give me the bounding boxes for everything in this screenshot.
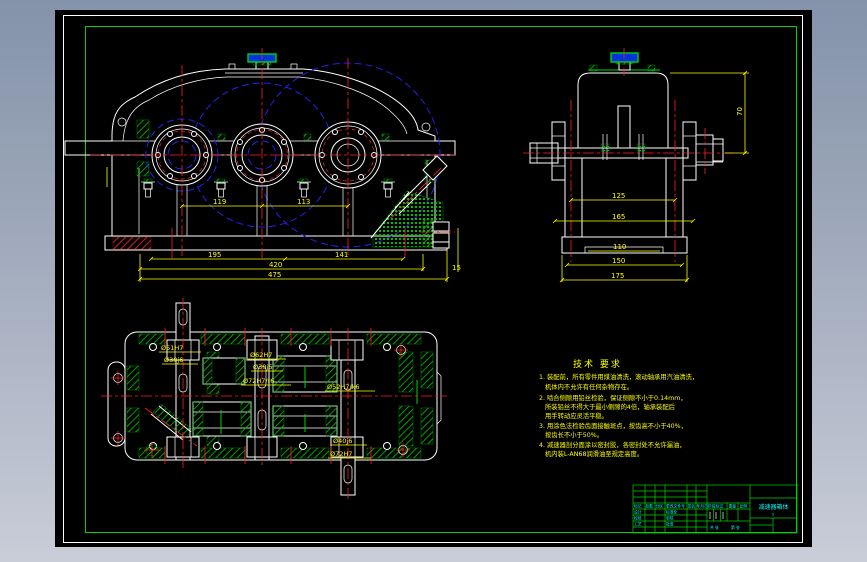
tech-notes-title: 技术 要求 <box>573 358 622 370</box>
fit-bore2-line2: Ø30j6 <box>253 363 272 371</box>
tb-role-check: 校核 <box>634 516 642 521</box>
tb-rev-count: 处数 <box>646 504 654 509</box>
dim-w5: 175 <box>611 272 624 280</box>
tb-sheet-total: 共 张 <box>710 525 719 530</box>
breather-plug-side <box>611 53 638 70</box>
dim-total-1: 420 <box>269 261 282 269</box>
dim-center-distance-2: 113 <box>297 198 310 206</box>
dim-center-distance-1: 119 <box>213 198 226 206</box>
tb-sheet-no: 第 张 <box>731 525 740 530</box>
fit-bore5-line2: Ø72H7 <box>330 450 352 458</box>
fit-bore1-line2: Ø30j6 <box>164 356 183 364</box>
dim-w1: 125 <box>612 192 625 200</box>
dim-w4: 150 <box>612 257 625 265</box>
breather-plug <box>225 54 303 73</box>
tb-role-audit: 审核 <box>666 516 674 521</box>
tech-note-line: 3. 用涂色法检验齿面接触斑点，按齿高不小于40%， <box>539 421 687 430</box>
fit-bore1-line1: Ø51H7 <box>161 344 183 352</box>
tb-rev-zone: 分区 <box>656 504 664 509</box>
tech-note-line: 用手转动应灵活平稳。 <box>545 411 608 420</box>
fit-bore2-line1: Ø62H7 <box>250 351 272 359</box>
side-view: 70 125 165 110 150 175 <box>523 48 749 282</box>
base-section-hatch <box>113 237 151 249</box>
tb-drawing-code: 2 <box>772 512 775 517</box>
tech-note-line: 机体内不允许有任何杂物存在。 <box>545 382 633 391</box>
title-block: 标记 处数 分区 更改文件号 签名 年月日 设计 校核 工艺 标准化 审核 批准 <box>633 485 797 533</box>
front-view: 119 113 195 141 420 475 15 <box>65 48 461 282</box>
tech-notes: 技术 要求 1. 装配前，所有零件用煤油清洗，滚动轴承用汽油清洗， 机体内不允许… <box>539 358 698 458</box>
dim-base-1: 195 <box>208 251 221 259</box>
tb-rev-mark: 标记 <box>634 504 642 509</box>
tb-scale-label: 比例 <box>740 504 748 509</box>
tech-note-line: 所装铅丝不得大于最小侧隙的4倍，轴承装配后 <box>545 402 675 411</box>
dim-base-2: 141 <box>335 251 348 259</box>
output-shaft <box>696 135 723 165</box>
tb-weight-label: 重量 <box>729 504 737 509</box>
tb-role-standard: 标准化 <box>666 510 678 515</box>
tech-note-line: 4. 减速器剖分面涂以密封胶，各密封处不允许漏油， <box>539 440 686 449</box>
fit-bore3: Ø72H7/r6 <box>243 377 274 385</box>
tb-rev-sign: 签名 <box>688 504 696 509</box>
tb-role-process: 工艺 <box>634 522 642 527</box>
tb-role-approve: 批准 <box>666 522 674 527</box>
tech-note-line: 按齿长不小于50%。 <box>545 430 603 439</box>
fit-bore5-line1: Ø40j6 <box>333 437 352 445</box>
cad-preview-background: 119 113 195 141 420 475 15 <box>0 0 867 562</box>
cad-drawing: 119 113 195 141 420 475 15 <box>55 10 812 547</box>
tech-note-line: 机内装L-AN68润滑油至规定高度。 <box>545 449 643 458</box>
tech-note-line: 2. 啮合侧隙用铅丝检验，保证侧隙不小于0.14mm， <box>539 393 687 402</box>
dim-total-2: 475 <box>268 271 281 279</box>
tb-stage-label: 阶段标记 <box>708 504 723 509</box>
dim-w3: 110 <box>613 243 626 251</box>
tb-role-design: 设计 <box>634 510 642 515</box>
tech-note-line: 1. 装配前，所有零件用煤油清洗，滚动轴承用汽油清洗， <box>539 372 698 381</box>
dim-w2: 165 <box>612 213 625 221</box>
tb-rev-date: 年月日 <box>697 504 709 509</box>
drain-plug <box>420 220 455 248</box>
dim-height: 70 <box>736 107 744 116</box>
dim-plug: 15 <box>452 264 461 272</box>
tb-rev-doc: 更改文件号 <box>666 504 685 509</box>
tb-drawing-name: 减速器箱体 <box>758 503 788 511</box>
top-view: Ø51H7 Ø30j6 Ø62H7 Ø30j6 Ø72H7/r6 Ø52H7/k… <box>101 298 447 500</box>
fit-bore4: Ø52H7/k6 <box>327 383 360 391</box>
drawing-canvas: 119 113 195 141 420 475 15 <box>55 10 812 547</box>
